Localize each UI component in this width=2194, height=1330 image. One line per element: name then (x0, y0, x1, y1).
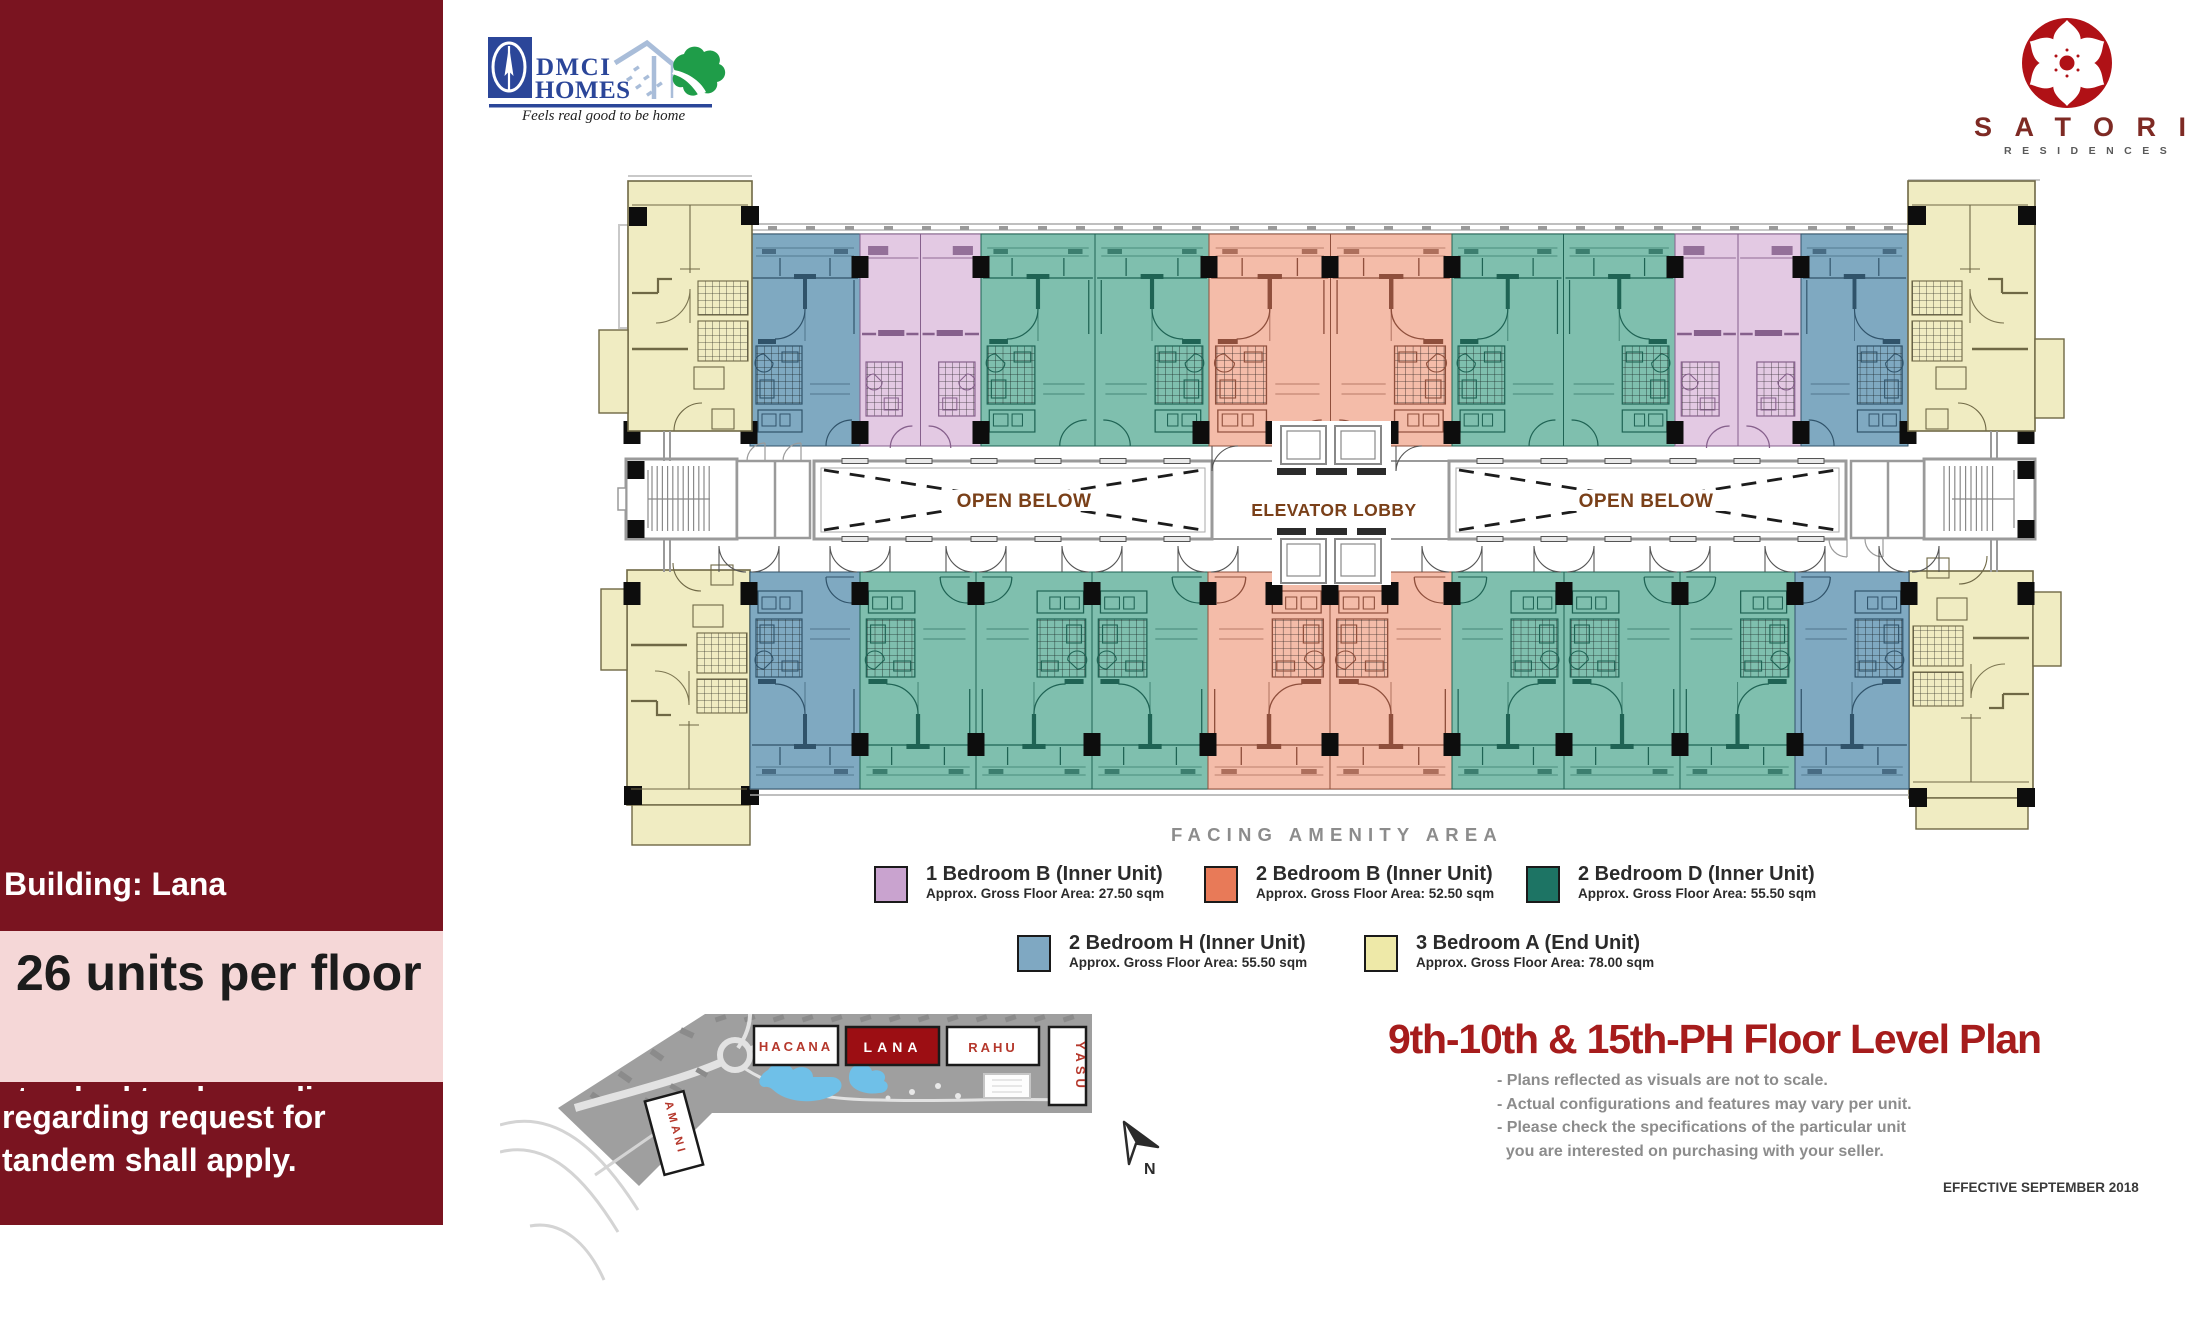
svg-text:ELEVATOR LOBBY: ELEVATOR LOBBY (1251, 500, 1416, 520)
svg-text:RAHU: RAHU (968, 1040, 1018, 1055)
svg-text:FACING AMENITY AREA: FACING AMENITY AREA (1171, 824, 1503, 845)
svg-text:OPEN BELOW: OPEN BELOW (957, 491, 1092, 512)
svg-text:YASU: YASU (1073, 1041, 1088, 1092)
svg-text:LANA: LANA (864, 1039, 923, 1055)
svg-text:N: N (1144, 1161, 1156, 1178)
svg-text:OPEN BELOW: OPEN BELOW (1579, 491, 1714, 512)
svg-text:HACANA: HACANA (759, 1039, 833, 1054)
